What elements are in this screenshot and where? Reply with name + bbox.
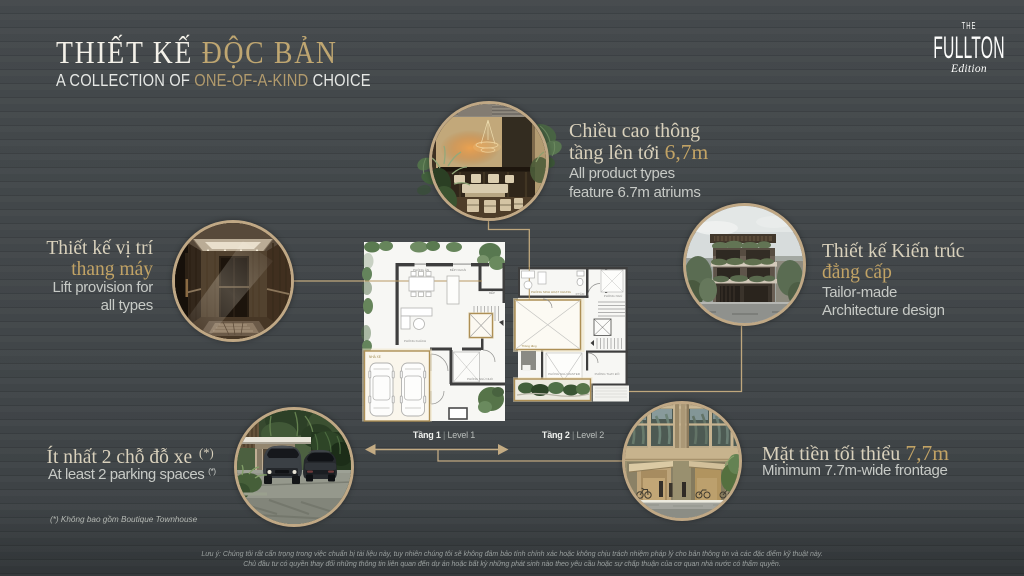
svg-text:BẾP NGOÀI: BẾP NGOÀI (450, 267, 467, 272)
svg-text:NHÀ XE: NHÀ XE (369, 355, 381, 359)
svg-text:PHÒNG KHÁCH: PHÒNG KHÁCH (404, 338, 426, 343)
svg-text:PHÒNG ĂN: PHÒNG ĂN (413, 267, 429, 272)
svg-text:PHÒNG NGỦ: PHÒNG NGỦ (604, 293, 623, 298)
svg-text:P.TẮM: P.TẮM (576, 291, 585, 296)
svg-text:PHÒNG NGỦ MASTER: PHÒNG NGỦ MASTER (548, 371, 581, 376)
svg-text:BẾP: BẾP (489, 290, 495, 295)
svg-text:PHÒNG THAY ĐỒ: PHÒNG THAY ĐỒ (595, 371, 621, 376)
svg-text:Thông tầng: Thông tầng (521, 344, 537, 348)
svg-text:PHÒNG SINH HOẠT CHUNG: PHÒNG SINH HOẠT CHUNG (531, 289, 572, 294)
svg-text:PHÒNG NGỦ NHỎ: PHÒNG NGỦ NHỎ (467, 376, 494, 381)
